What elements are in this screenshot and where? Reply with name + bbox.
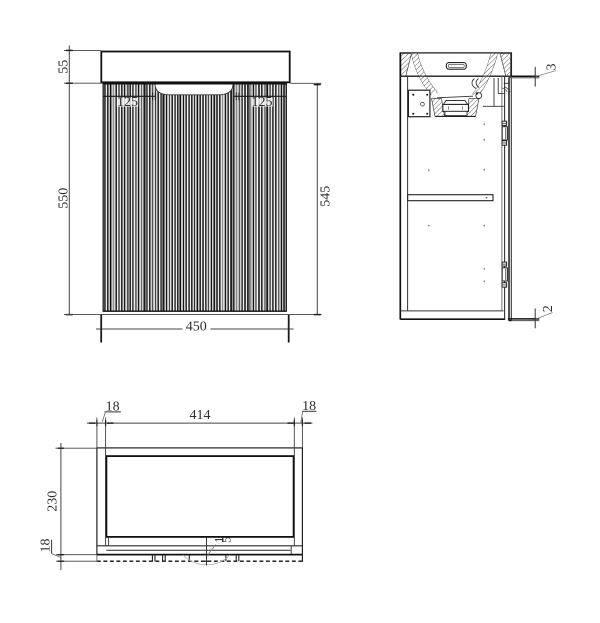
svg-text:125: 125: [252, 95, 273, 110]
svg-text:18: 18: [106, 400, 120, 415]
svg-text:230: 230: [46, 491, 61, 512]
svg-text:5: 5: [218, 537, 233, 544]
svg-text:2: 2: [541, 305, 556, 312]
svg-text:545: 545: [318, 186, 333, 207]
svg-text:55: 55: [56, 60, 71, 74]
svg-text:550: 550: [56, 188, 71, 209]
svg-text:18: 18: [39, 539, 54, 553]
svg-text:125: 125: [117, 95, 138, 110]
svg-text:450: 450: [186, 320, 207, 335]
svg-text:3: 3: [544, 64, 559, 71]
svg-text:414: 414: [190, 408, 211, 423]
svg-text:18: 18: [302, 399, 316, 414]
